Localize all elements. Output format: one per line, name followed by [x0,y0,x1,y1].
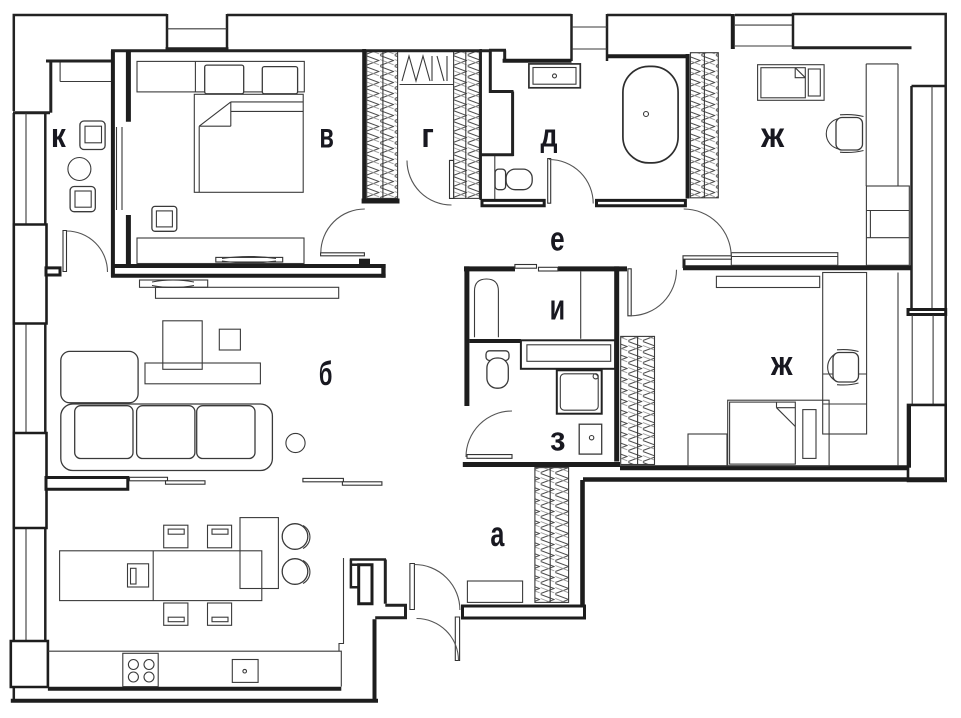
svg-text:ж: ж [760,115,785,155]
svg-text:и: и [550,286,566,327]
svg-text:в: в [319,116,334,156]
svg-text:ж: ж [770,345,793,383]
svg-text:з: з [550,420,566,458]
svg-text:б: б [319,356,333,393]
svg-text:а: а [490,515,504,554]
svg-text:е: е [550,221,565,259]
svg-text:д: д [541,117,558,153]
svg-text:к: к [51,117,67,155]
svg-text:г: г [421,117,434,155]
